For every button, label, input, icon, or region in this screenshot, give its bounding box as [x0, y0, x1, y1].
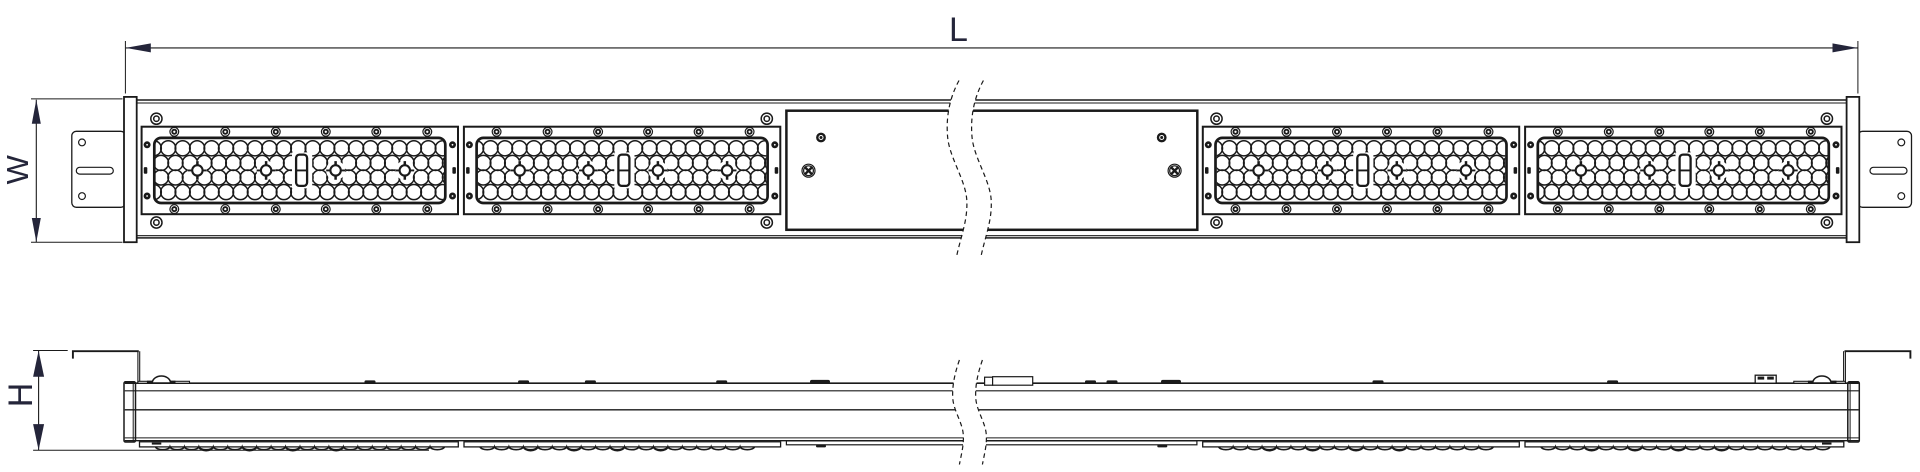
svg-text:W: W — [0, 154, 35, 184]
svg-text:L: L — [949, 11, 968, 49]
svg-text:H: H — [2, 383, 40, 408]
